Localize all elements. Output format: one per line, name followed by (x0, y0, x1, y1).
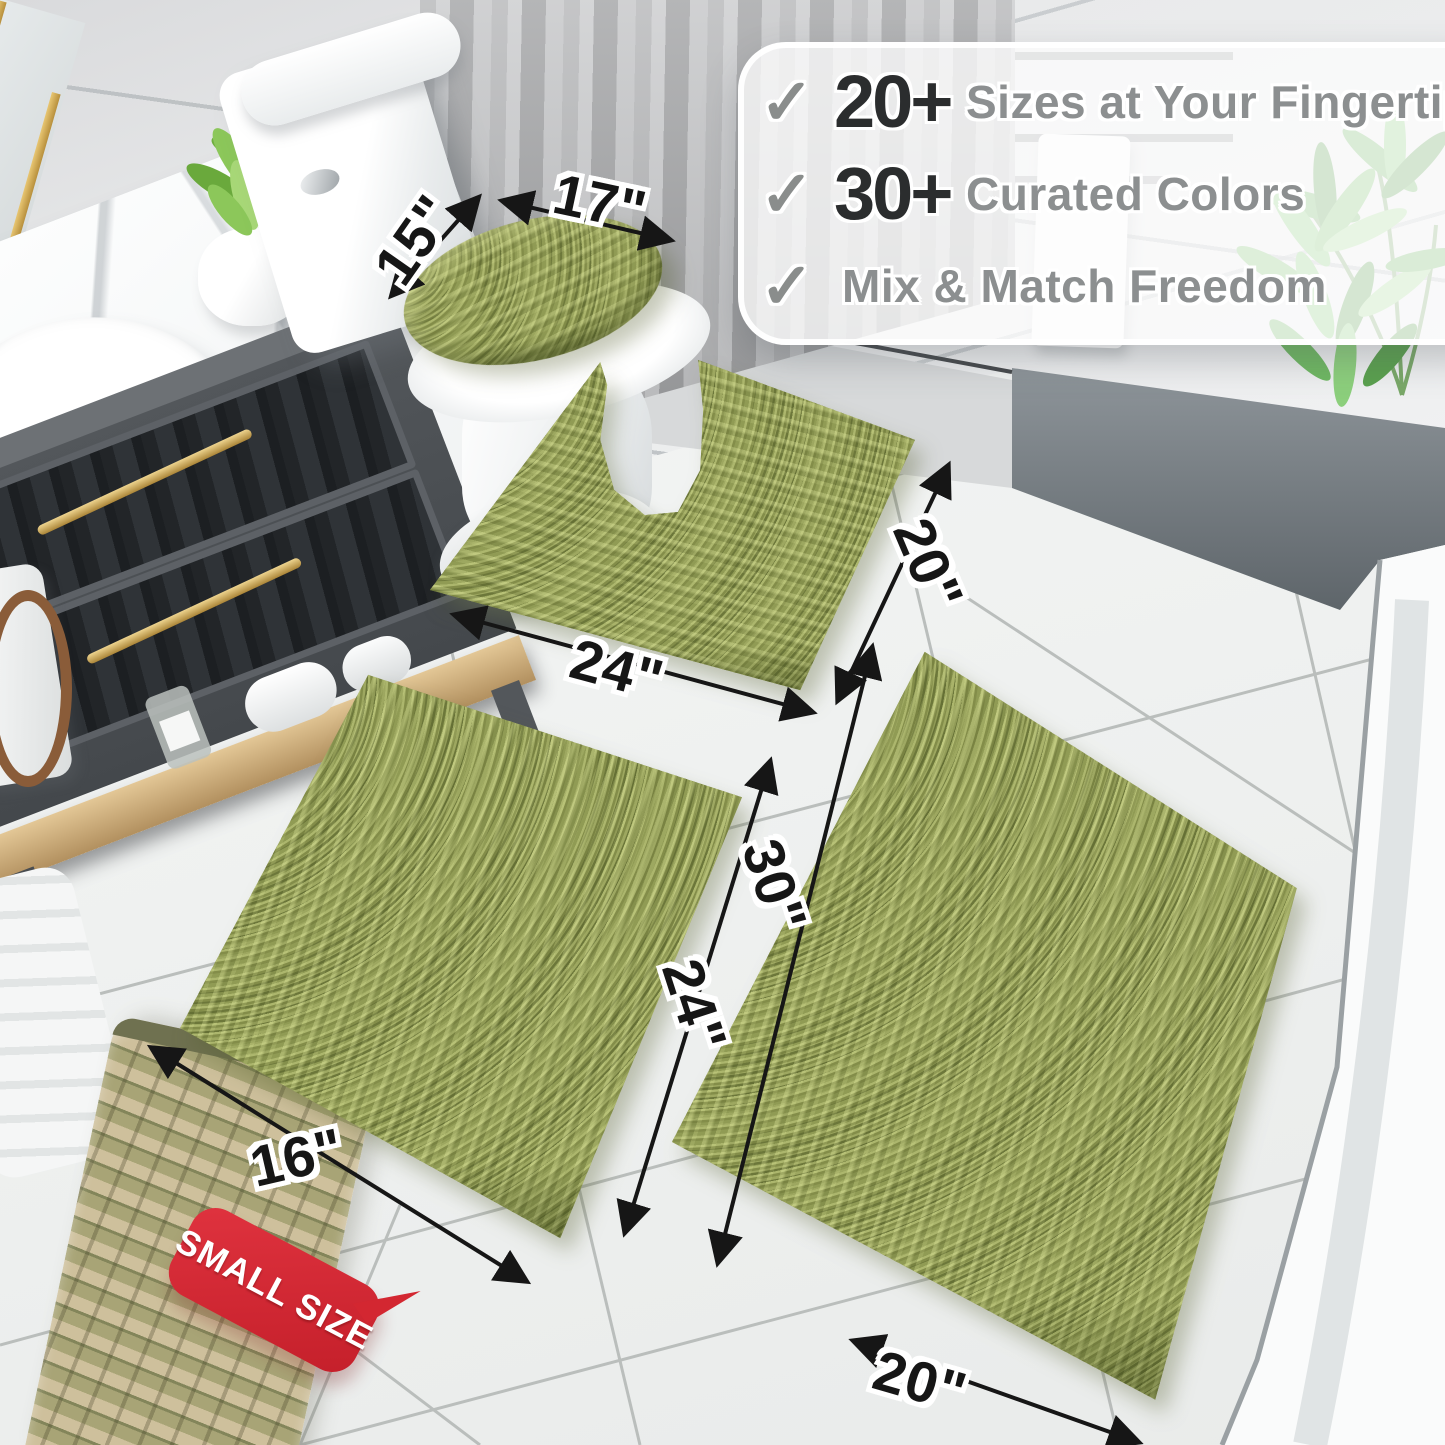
check-icon: ✓ (760, 254, 834, 318)
feature-panel: ✓ 20+ Sizes at Your Fingertips ✓ 30+ Cur… (738, 42, 1445, 345)
check-icon: ✓ (760, 162, 834, 226)
feature-row-colors: ✓ 30+ Curated Colors (760, 153, 1445, 235)
sizes-count: 20+ (834, 65, 966, 139)
colors-label: Curated Colors (966, 171, 1305, 217)
colors-count: 30+ (834, 157, 966, 231)
feature-row-mix: ✓ Mix & Match Freedom (760, 245, 1445, 327)
arrow-large-length (718, 648, 872, 1262)
feature-row-sizes: ✓ 20+ Sizes at Your Fingertips (760, 61, 1445, 143)
sizes-label: Sizes at Your Fingertips (966, 79, 1445, 125)
check-icon: ✓ (760, 70, 834, 134)
bathroom-product-scene: 15" 17" 24" 20" 24" 30" 16" 20" (0, 0, 1445, 1445)
mix-label: Mix & Match Freedom (842, 263, 1327, 309)
